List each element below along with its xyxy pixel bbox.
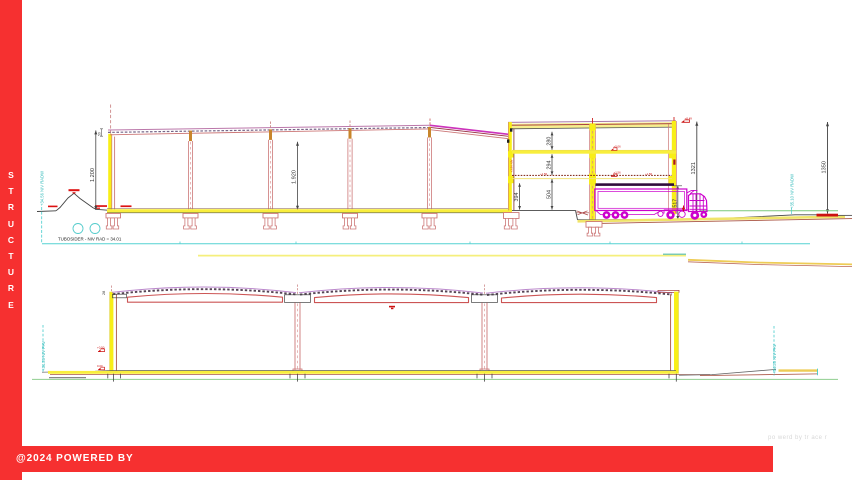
svg-text:+1.56: +1.56	[614, 171, 622, 175]
svg-text:394: 394	[514, 193, 520, 202]
svg-text:+34.25 NIV PAV: +34.25 NIV PAV	[41, 341, 46, 371]
svg-text:1.200: 1.200	[90, 168, 96, 182]
svg-text:50: 50	[97, 132, 101, 136]
svg-text:1321: 1321	[691, 162, 697, 174]
svg-text:1.920: 1.920	[292, 170, 298, 184]
svg-text:0.00: 0.00	[97, 364, 103, 368]
svg-text:+5.06: +5.06	[614, 144, 622, 148]
svg-text:+1.56: +1.56	[540, 172, 548, 176]
svg-text:TUBOSIDER - NIV RAD = 34.01: TUBOSIDER - NIV RAD = 34.01	[58, 237, 122, 242]
svg-text:+3.86 NIV: +3.86 NIV	[510, 159, 514, 172]
svg-text:280: 280	[546, 137, 552, 146]
svg-text:+34.25 NIV PAV: +34.25 NIV PAV	[772, 344, 777, 374]
svg-text:517: 517	[672, 199, 678, 208]
svg-text:1350: 1350	[822, 161, 828, 173]
svg-text:+34.56 NIV RADW: +34.56 NIV RADW	[40, 171, 45, 206]
svg-text:+35.10 NIV RADW: +35.10 NIV RADW	[789, 174, 794, 209]
svg-text:+0.50: +0.50	[97, 346, 105, 350]
svg-text:+8.49: +8.49	[685, 117, 693, 121]
svg-text:504: 504	[546, 190, 552, 199]
svg-text:294: 294	[546, 161, 552, 170]
svg-text:28: 28	[102, 291, 106, 295]
svg-text:+1.56: +1.56	[645, 172, 653, 176]
